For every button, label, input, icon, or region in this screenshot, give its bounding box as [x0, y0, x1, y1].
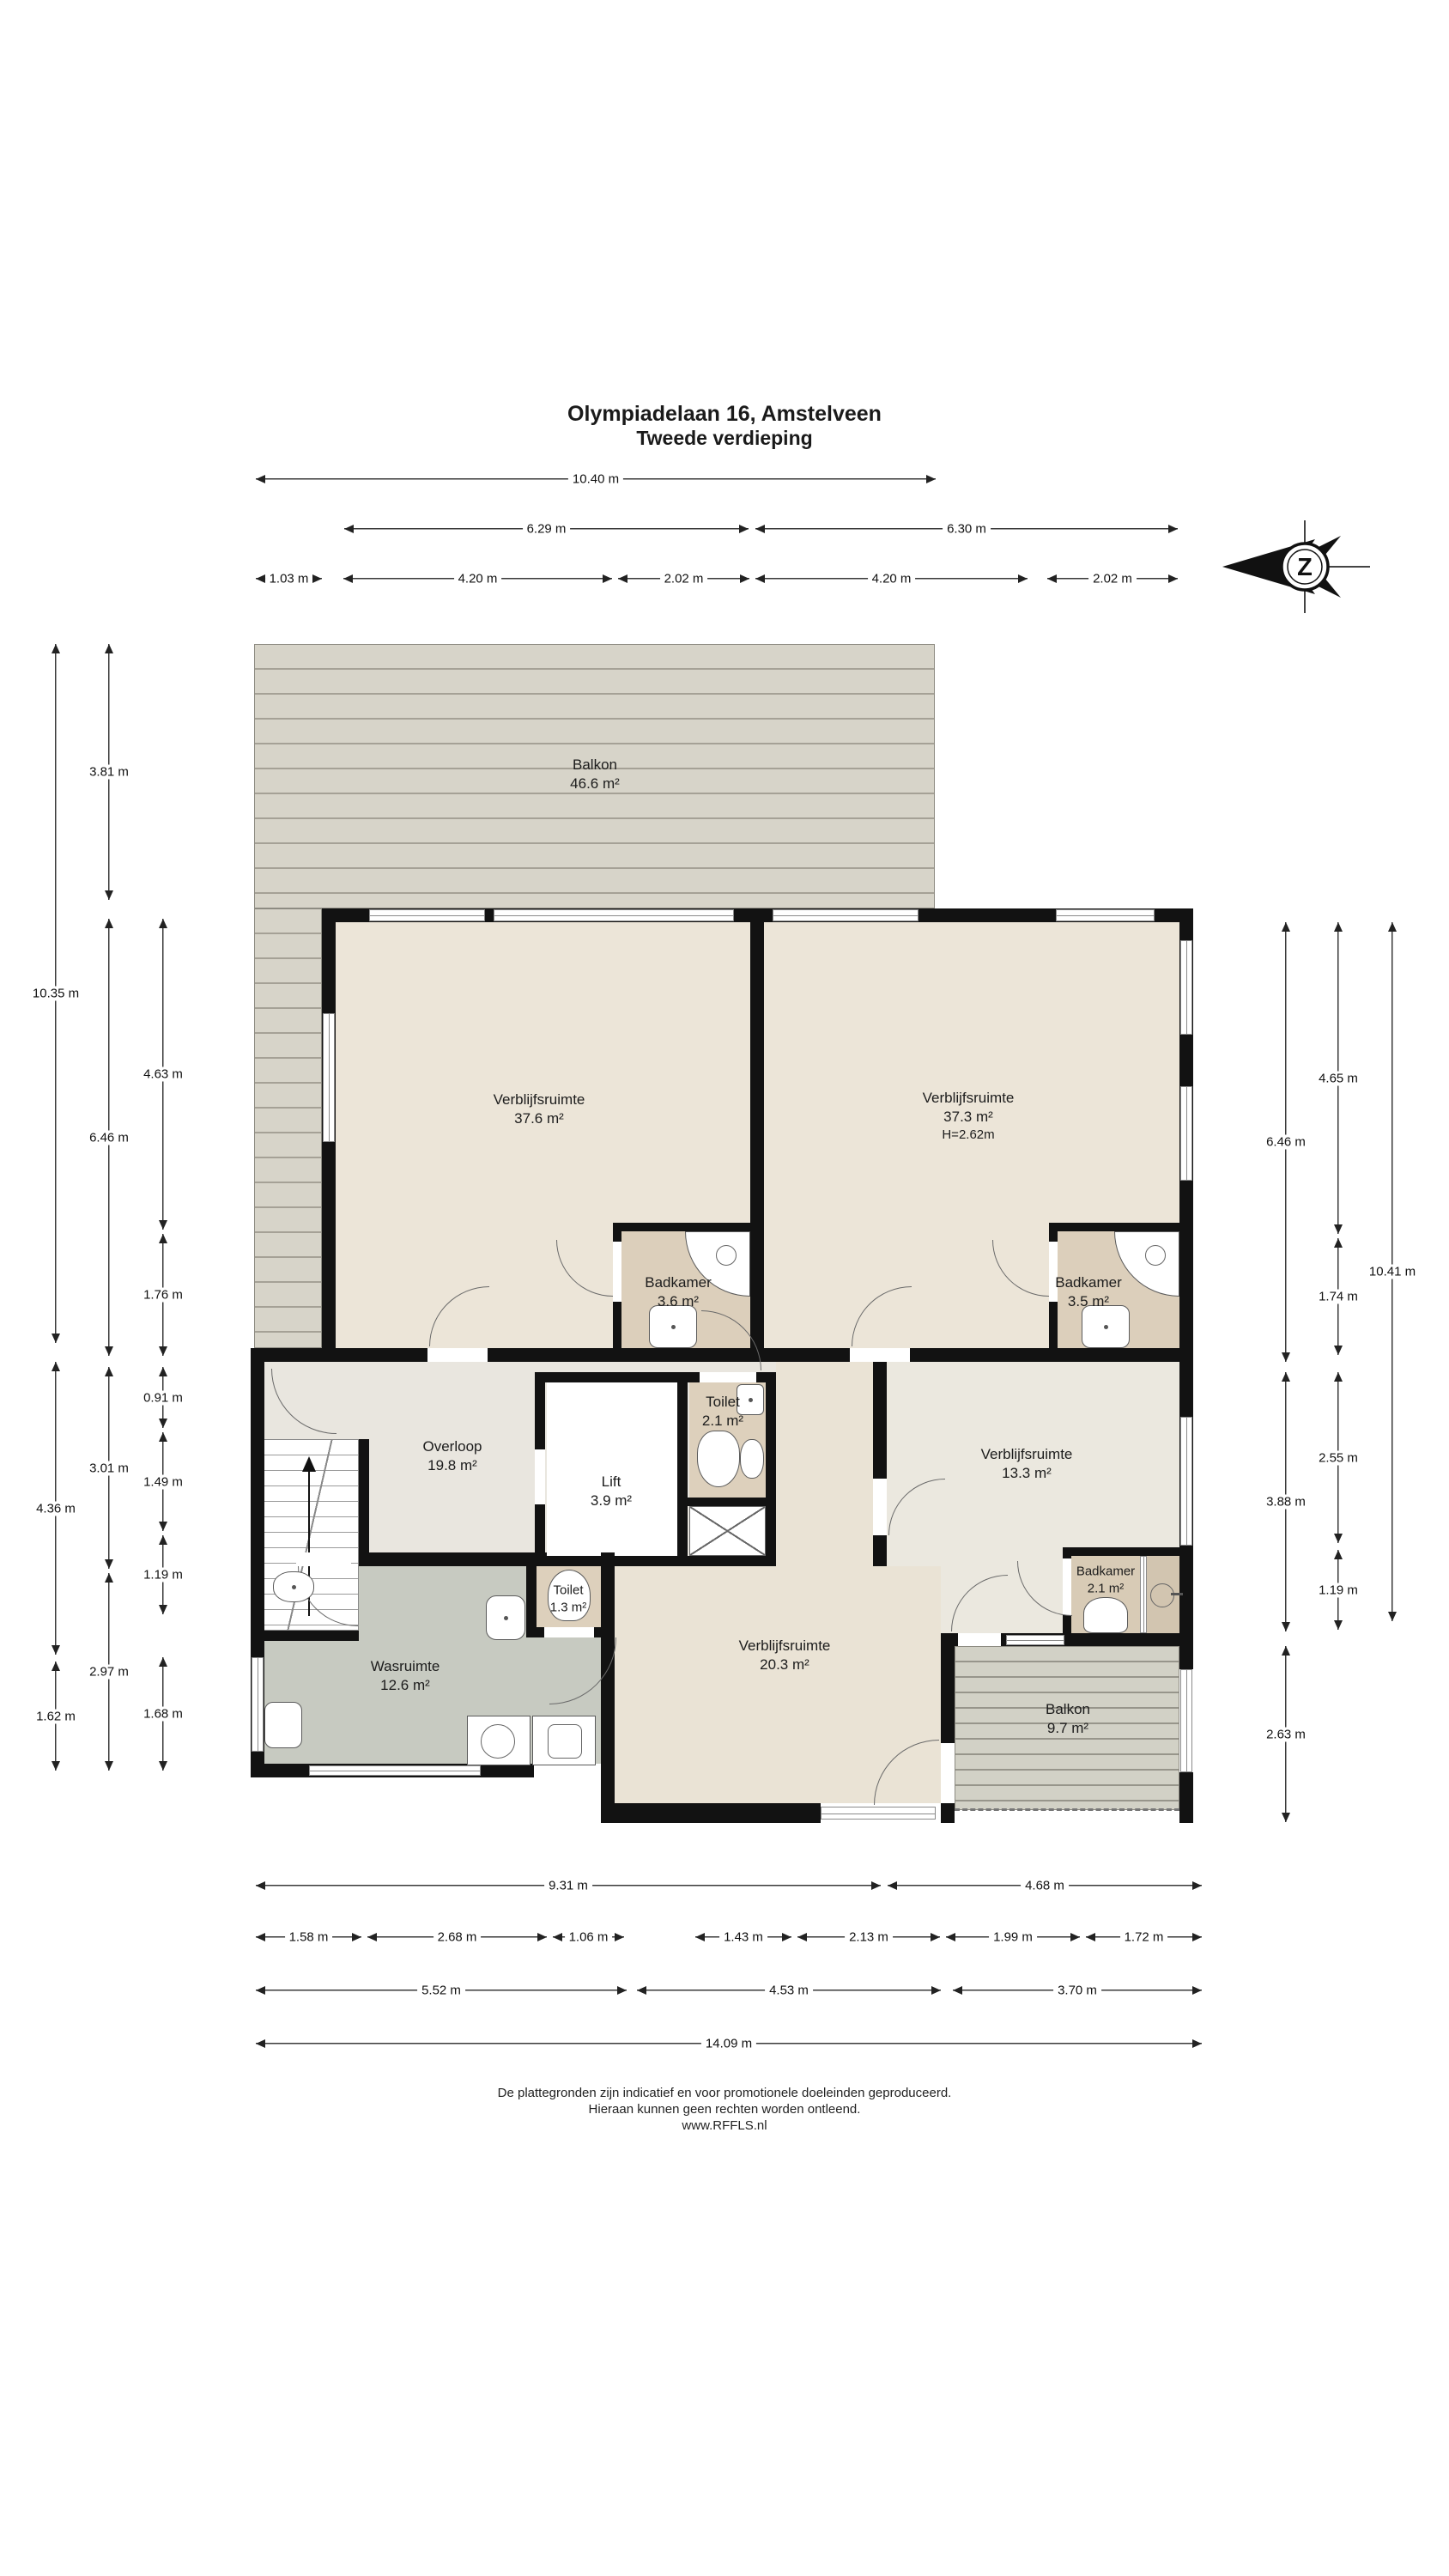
- balcony-railing: [1180, 1669, 1192, 1772]
- floor-subtitle: Tweede verdieping: [295, 427, 1154, 450]
- dim-bottom: 14.09 m: [256, 2038, 1202, 2049]
- toilet: [697, 1431, 740, 1487]
- dim-bottom: 4.53 m: [637, 1985, 941, 1996]
- dim-left: 4.36 m: [51, 1362, 61, 1655]
- room-name: Verblijfsruimte: [981, 1445, 1073, 1464]
- dim-left: 1.19 m: [158, 1535, 168, 1614]
- room-area: 12.6 m²: [371, 1676, 440, 1695]
- wall-center: [750, 922, 764, 1362]
- installation-shaft: [689, 1506, 766, 1556]
- dim-top: 6.30 m: [755, 524, 1178, 534]
- room-area: 13.3 m²: [981, 1464, 1073, 1483]
- dim-bottom: 4.68 m: [888, 1880, 1202, 1891]
- wall-lift-top-b: [756, 1372, 776, 1382]
- dim-top: 6.29 m: [344, 524, 749, 534]
- sink: [273, 1571, 314, 1602]
- room-label-balkon-bottom: Balkon 9.7 m²: [1046, 1700, 1090, 1738]
- room-area: 1.3 m²: [550, 1599, 587, 1616]
- door-opening: [850, 1348, 910, 1362]
- room-area: 46.6 m²: [570, 775, 620, 793]
- wall-stair-bottom: [251, 1631, 359, 1641]
- room-label-toilet-upper: Toilet 2.1 m²: [702, 1393, 743, 1431]
- wall-lift-top-a: [535, 1372, 700, 1382]
- window: [1180, 1417, 1192, 1546]
- wall-toilet-shaft-divider: [688, 1498, 766, 1506]
- wall-wasruimte-top: [359, 1552, 547, 1566]
- room-label-verblijfsruimte-13: Verblijfsruimte 13.3 m²: [981, 1445, 1073, 1483]
- room-label-balkon-top: Balkon 46.6 m²: [570, 756, 620, 793]
- wall-east-balkon-b: [1179, 1772, 1193, 1823]
- window: [1180, 940, 1192, 1035]
- window: [1180, 1086, 1192, 1181]
- shower-head-icon: [1150, 1583, 1174, 1607]
- room-name: Overloop: [423, 1437, 482, 1456]
- room-label-overloop: Overloop 19.8 m²: [423, 1437, 482, 1475]
- wall-balkon-left-b: [941, 1803, 955, 1823]
- balcony-edge-dashed: [955, 1808, 1179, 1811]
- room-area: 2.1 m²: [702, 1412, 743, 1431]
- room-name: Balkon: [1046, 1700, 1090, 1719]
- room-label-badkamer-left: Badkamer 3.6 m²: [645, 1273, 711, 1311]
- window: [1056, 909, 1155, 921]
- dim-left: 1.76 m: [158, 1234, 168, 1356]
- door-opening: [958, 1633, 1001, 1646]
- door-opening: [296, 1552, 351, 1566]
- dim-top: 1.03 m: [256, 574, 322, 584]
- room-area: 19.8 m²: [423, 1456, 482, 1475]
- dim-bottom: 2.68 m: [367, 1932, 547, 1942]
- dim-top: 2.02 m: [618, 574, 749, 584]
- corridor-floor: [776, 1362, 873, 1566]
- dim-bottom: 1.99 m: [946, 1932, 1080, 1942]
- stair-up-arrow: [302, 1456, 316, 1472]
- sink: [740, 1439, 764, 1479]
- dim-left: 3.81 m: [104, 644, 114, 900]
- room-area: 3.6 m²: [645, 1292, 711, 1311]
- dim-right: 3.88 m: [1281, 1372, 1291, 1631]
- dim-right: 10.41 m: [1387, 922, 1397, 1621]
- sink: [1082, 1305, 1130, 1348]
- room-label-badkamer-small: Badkamer 2.1 m²: [1076, 1564, 1135, 1597]
- disclaimer-line-1: De plattegronden zijn indicatief en voor…: [295, 2085, 1154, 2101]
- room-area: 3.5 m²: [1055, 1292, 1121, 1311]
- room-label-verblijfsruimte-20: Verblijfsruimte 20.3 m²: [739, 1637, 831, 1674]
- wall-13-left-a: [873, 1362, 887, 1479]
- room-label-verblijfsruimte-left: Verblijfsruimte 37.6 m²: [494, 1091, 585, 1128]
- dim-bottom: 9.31 m: [256, 1880, 881, 1891]
- dim-bottom: 1.58 m: [256, 1932, 361, 1942]
- washer-drum: [481, 1724, 515, 1759]
- room-name: Verblijfsruimte: [739, 1637, 831, 1656]
- lift-floor: [547, 1382, 677, 1556]
- dim-top: 4.20 m: [755, 574, 1028, 584]
- wall-bath-right-top: [1049, 1223, 1179, 1231]
- boiler: [264, 1702, 302, 1748]
- room-name: Toilet: [550, 1583, 587, 1600]
- dim-left: 1.62 m: [51, 1662, 61, 1771]
- wall-lift-bottom: [535, 1556, 776, 1566]
- website-url: www.RFFLS.nl: [295, 2117, 1154, 2134]
- room-label-wasruimte: Wasruimte 12.6 m²: [371, 1657, 440, 1695]
- door-opening: [700, 1372, 756, 1382]
- lift-door-opening: [535, 1449, 545, 1504]
- window: [323, 1013, 335, 1142]
- dim-bottom: 3.70 m: [953, 1985, 1202, 1996]
- window: [369, 909, 485, 921]
- room-name: Verblijfsruimte: [923, 1089, 1015, 1108]
- wall-bath-left-top: [613, 1223, 750, 1231]
- dim-right: 4.65 m: [1333, 922, 1343, 1234]
- dim-right: 6.46 m: [1281, 922, 1291, 1362]
- window: [309, 1765, 481, 1776]
- wall-balkon-left-a: [941, 1646, 955, 1743]
- room-name: Wasruimte: [371, 1657, 440, 1676]
- wall-20-bottom: [601, 1803, 821, 1823]
- dim-top: 10.40 m: [256, 474, 936, 484]
- dim-left: 6.46 m: [104, 919, 114, 1356]
- shower-head-icon: [716, 1245, 737, 1266]
- dim-bottom: 1.43 m: [695, 1932, 791, 1942]
- door-opening: [427, 1348, 488, 1362]
- door-opening: [873, 1479, 887, 1535]
- dim-left: 10.35 m: [51, 644, 61, 1343]
- window: [494, 909, 734, 921]
- dim-right: 2.55 m: [1333, 1372, 1343, 1543]
- dim-right: 2.63 m: [1281, 1646, 1291, 1822]
- window: [1006, 1635, 1064, 1645]
- dim-bottom: 2.13 m: [797, 1932, 940, 1942]
- bathroom-glass-partition: [1140, 1556, 1147, 1633]
- room-name: Badkamer: [645, 1273, 711, 1292]
- door-opening: [613, 1242, 621, 1302]
- room-name: Verblijfsruimte: [494, 1091, 585, 1109]
- room-label-lift: Lift 3.9 m²: [591, 1473, 632, 1510]
- wall-13-left-b: [873, 1535, 887, 1566]
- dim-left: 1.68 m: [158, 1657, 168, 1771]
- window: [821, 1807, 936, 1820]
- wall-stair-right: [359, 1439, 369, 1566]
- room-area: 3.9 m²: [591, 1492, 632, 1510]
- room-area: 37.3 m²: [923, 1108, 1015, 1127]
- disclaimer: De plattegronden zijn indicatief en voor…: [295, 2085, 1154, 2134]
- dim-bottom: 5.52 m: [256, 1985, 627, 1996]
- wall-lift-toilet-divider: [677, 1382, 688, 1556]
- shower-arm: [1171, 1593, 1183, 1595]
- dryer-drum: [548, 1724, 582, 1759]
- balcony-left-deck: [254, 908, 322, 1348]
- page-title: Olympiadelaan 16, Amstelveen Tweede verd…: [295, 402, 1154, 450]
- room-area: 9.7 m²: [1046, 1719, 1090, 1738]
- wall-toilet-lower-left: [526, 1552, 537, 1637]
- room-area: 37.6 m²: [494, 1109, 585, 1128]
- wall-toilet-right: [766, 1382, 776, 1566]
- wall-bath-small-top: [1063, 1547, 1179, 1556]
- window: [773, 909, 919, 921]
- room-name: Balkon: [570, 756, 620, 775]
- floor-plan-page: Olympiadelaan 16, Amstelveen Tweede verd…: [0, 0, 1449, 2576]
- wall-toilet-lower-right: [601, 1552, 615, 1637]
- room-label-toilet-lower: Toilet 1.3 m²: [550, 1583, 587, 1616]
- room-name: Lift: [591, 1473, 632, 1492]
- address-title: Olympiadelaan 16, Amstelveen: [295, 402, 1154, 427]
- dim-left: 0.91 m: [158, 1367, 168, 1428]
- door-opening: [544, 1627, 594, 1637]
- room-name: Badkamer: [1055, 1273, 1121, 1292]
- room-area: 2.1 m²: [1076, 1580, 1135, 1597]
- dim-left: 1.49 m: [158, 1432, 168, 1531]
- dim-bottom: 1.72 m: [1086, 1932, 1202, 1942]
- room-name: Toilet: [702, 1393, 743, 1412]
- shower-head-icon: [1145, 1245, 1166, 1266]
- wall-east-balkon-a: [1179, 1633, 1193, 1669]
- compass-north-arrow: Z: [1212, 515, 1375, 618]
- dim-top: 4.20 m: [343, 574, 612, 584]
- sink: [649, 1305, 697, 1348]
- room-height: H=2.62m: [923, 1127, 1015, 1144]
- room-name: Badkamer: [1076, 1564, 1135, 1581]
- toilet: [1083, 1597, 1128, 1633]
- disclaimer-line-2: Hieraan kunnen geen rechten worden ontle…: [295, 2101, 1154, 2117]
- compass-letter: Z: [1297, 554, 1313, 581]
- dim-right: 1.74 m: [1333, 1238, 1343, 1355]
- dim-top: 2.02 m: [1047, 574, 1178, 584]
- room-label-badkamer-right: Badkamer 3.5 m²: [1055, 1273, 1121, 1311]
- door-opening: [941, 1743, 955, 1803]
- sink: [486, 1595, 525, 1640]
- dim-right: 1.19 m: [1333, 1550, 1343, 1630]
- dim-bottom: 1.06 m: [553, 1932, 624, 1942]
- dim-left: 4.63 m: [158, 919, 168, 1230]
- dim-left: 3.01 m: [104, 1367, 114, 1569]
- room-label-verblijfsruimte-right: Verblijfsruimte 37.3 m² H=2.62m: [923, 1089, 1015, 1144]
- window: [252, 1657, 264, 1752]
- room-area: 20.3 m²: [739, 1656, 831, 1674]
- dim-left: 2.97 m: [104, 1573, 114, 1771]
